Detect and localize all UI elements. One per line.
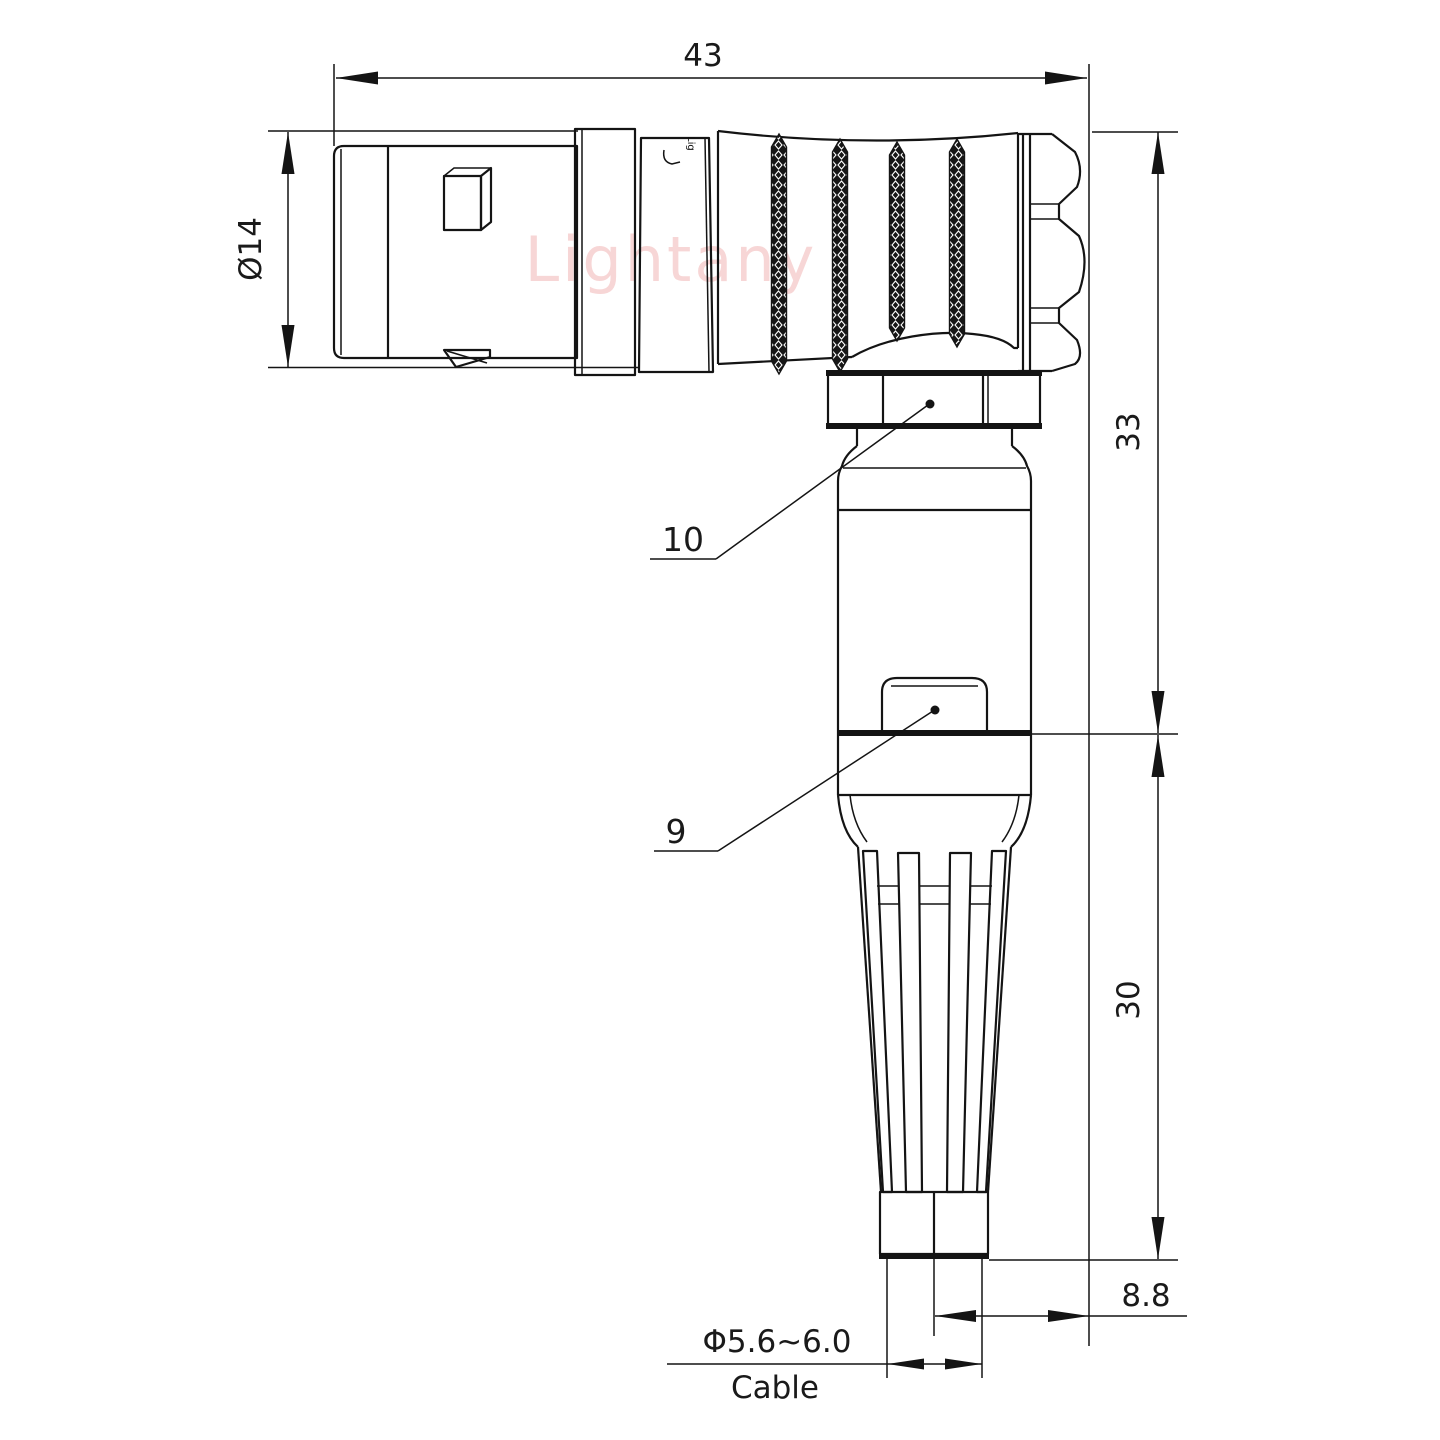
hex-nut	[826, 373, 1042, 426]
knurl-band	[772, 134, 787, 374]
arrowhead	[336, 72, 378, 85]
dimension-lower-height: 30	[1111, 735, 1165, 1259]
arrowhead	[1152, 691, 1165, 733]
arrowhead	[282, 132, 295, 174]
boot-ring-lines	[877, 886, 992, 904]
dimension-overall-length: 43	[336, 38, 1087, 85]
arrowhead	[1048, 1310, 1089, 1322]
dim-cable-offset-text: 8.8	[1121, 1278, 1170, 1314]
elbow-hump	[852, 333, 1018, 357]
dimension-cable-diameter: Φ5.6~6.0 Cable	[667, 1324, 982, 1406]
arrowhead	[935, 1310, 976, 1322]
leader-dot	[931, 706, 940, 715]
drawing-canvas: Lightany Lig	[0, 0, 1440, 1440]
cable-ferrule	[879, 1192, 989, 1256]
dim-lower-height-text: 30	[1111, 980, 1147, 1019]
label-coupling-nut: 10	[662, 520, 704, 559]
dimension-upper-height: 33	[1111, 132, 1165, 733]
arrowhead	[1152, 735, 1165, 777]
arrowhead	[282, 325, 295, 367]
elbow-vertical-section	[826, 373, 1042, 1256]
spacer-ring	[1018, 134, 1052, 371]
arrowhead	[945, 1359, 982, 1370]
end-cap-nut	[1030, 134, 1085, 371]
marking-hook	[664, 150, 680, 164]
boot-flute	[947, 853, 971, 1192]
knurl-band	[890, 142, 905, 341]
neck	[838, 429, 1031, 795]
body-marking: Lig	[685, 136, 696, 151]
arrowhead	[1045, 72, 1087, 85]
dim-upper-height-text: 33	[1111, 412, 1147, 451]
label-latch-sleeve: 9	[666, 812, 687, 851]
dim-cable-diameter-text: Φ5.6~6.0	[703, 1324, 852, 1360]
arrowhead	[1152, 1217, 1165, 1259]
dimension-cable-offset: 8.8	[935, 1278, 1187, 1322]
knurl-band	[950, 139, 965, 347]
dim-overall-length-text: 43	[683, 38, 722, 74]
latch-sleeve	[882, 678, 987, 733]
arrowhead	[887, 1359, 924, 1370]
boot-flute	[898, 853, 922, 1192]
strain-relief-boot	[838, 795, 1031, 1256]
dim-shell-diameter-text: Ø14	[233, 217, 269, 281]
latch-tab	[444, 168, 491, 230]
cable-word-text: Cable	[731, 1370, 819, 1406]
arrowhead	[1152, 132, 1165, 174]
leader-latch-sleeve: 9	[654, 706, 940, 852]
leader-dot	[926, 400, 935, 409]
dimension-shell-diameter: Ø14	[233, 132, 295, 367]
technical-drawing: Lightany Lig	[0, 0, 1440, 1440]
knurl-band	[833, 139, 848, 372]
